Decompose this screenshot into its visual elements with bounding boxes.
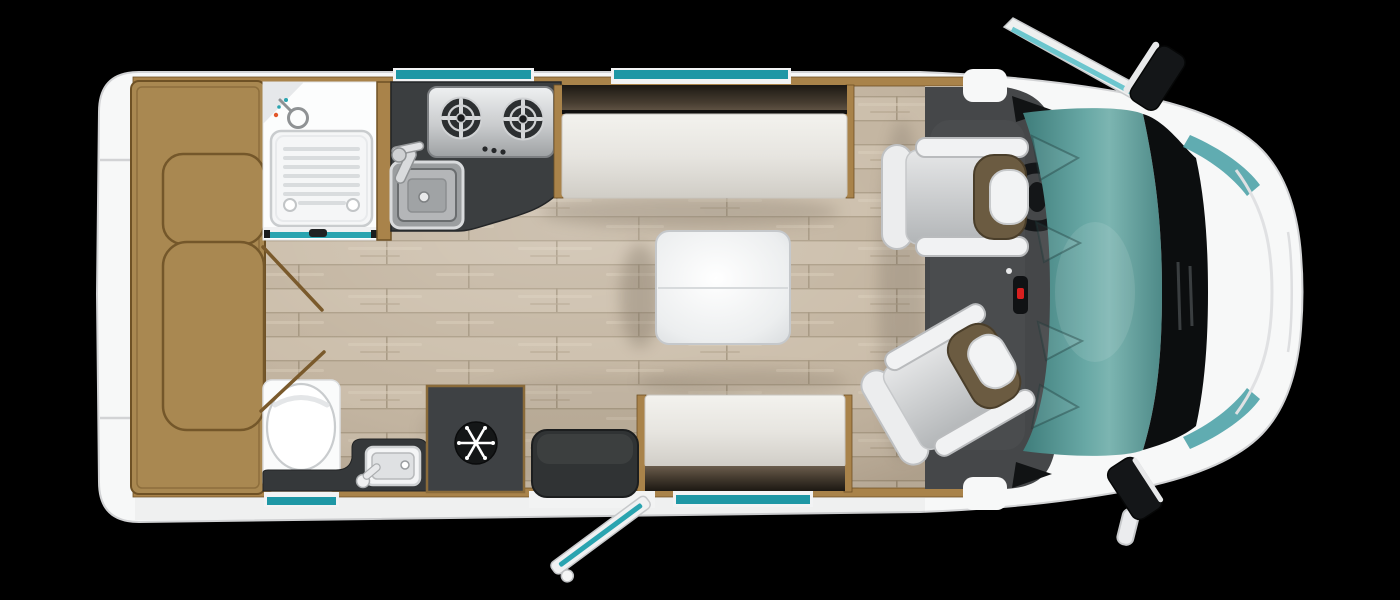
window-top-right <box>611 68 791 84</box>
driver-seat <box>882 138 1028 256</box>
hob <box>428 87 554 157</box>
body-notch <box>963 477 1007 510</box>
windscreen <box>1023 108 1208 456</box>
kitchen <box>391 82 561 231</box>
drain <box>347 199 359 211</box>
floorplan-stage <box>0 0 1400 600</box>
body-notch <box>963 69 1007 102</box>
drain <box>401 461 409 469</box>
drain <box>419 192 429 202</box>
washbasin <box>357 447 421 488</box>
shower-tray <box>271 131 372 226</box>
bench-seat-bottom <box>637 395 852 492</box>
shower-room <box>263 82 391 240</box>
drain <box>284 199 296 211</box>
window-bottom-right <box>673 490 813 507</box>
lounge-cushion <box>163 154 264 244</box>
window-bottom-left <box>264 492 339 507</box>
entry-step-sheen <box>537 434 633 464</box>
lounge-cushion <box>163 242 264 430</box>
partition-wall <box>377 82 391 240</box>
floor-shadow <box>620 244 660 348</box>
floor-shadow <box>540 196 840 228</box>
fridge <box>427 386 524 492</box>
shower-door <box>264 227 379 238</box>
rear-lounge <box>131 81 265 494</box>
dinette-table <box>656 231 790 344</box>
burner <box>441 98 482 139</box>
burner <box>503 99 544 140</box>
bench-seat-top <box>554 85 854 198</box>
snowflake-icon <box>455 422 497 464</box>
floorplan-svg <box>0 0 1400 600</box>
